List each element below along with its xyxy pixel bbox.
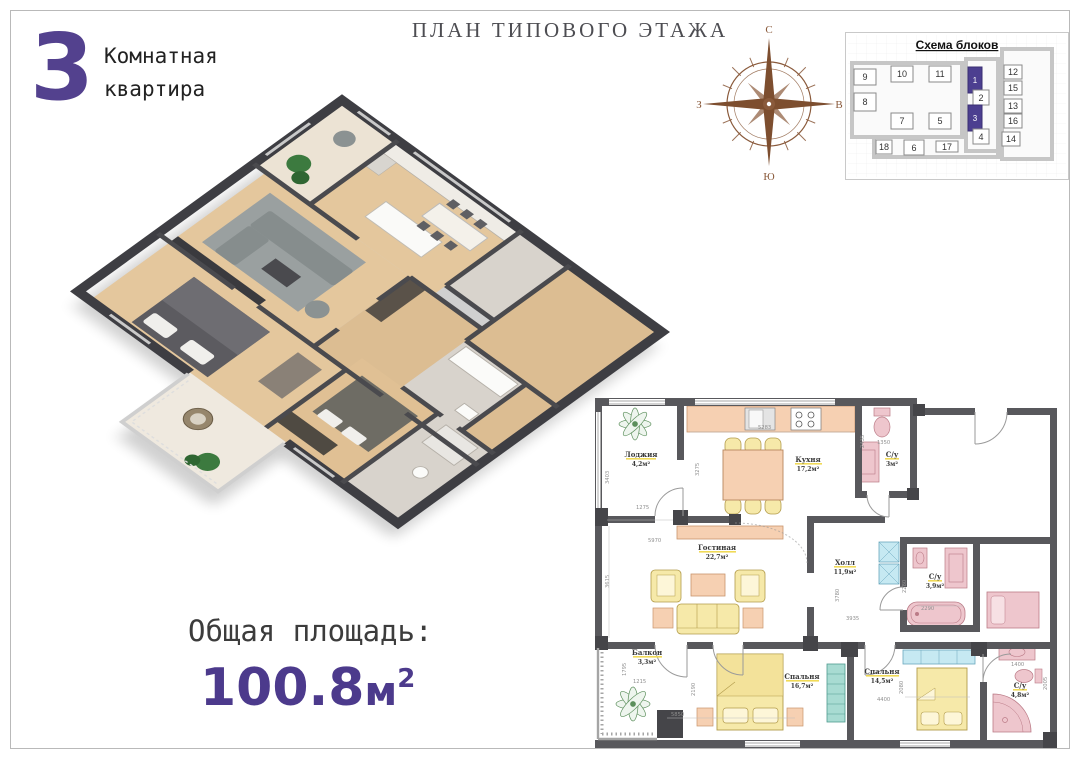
floor-plan-page: ПЛАН ТИПОВОГО ЭТАЖА 3 Комнатная квартира [0, 0, 1080, 763]
svg-text:Лоджия: Лоджия [625, 450, 658, 459]
svg-text:13: 13 [1008, 101, 1018, 111]
svg-text:17: 17 [942, 142, 952, 152]
svg-text:3780: 3780 [835, 589, 841, 602]
plan-3d [12, 92, 672, 584]
block-13: 13 [1004, 99, 1022, 113]
room-label-bedroom2: Спальня14,5м² [864, 667, 899, 685]
svg-text:15: 15 [1008, 83, 1018, 93]
toilet-tank [874, 408, 890, 416]
total-area-label: Общая площадь: [188, 614, 432, 648]
block-17: 17 [936, 141, 958, 152]
compass-west-label: З [696, 99, 702, 111]
room-label-wc2: С/у3,9м² [926, 572, 945, 590]
svg-text:С/у: С/у [886, 450, 899, 459]
balcony-plant-2d [616, 687, 650, 721]
block-10: 10 [891, 66, 913, 82]
console-table [677, 526, 783, 539]
svg-text:С/у: С/у [929, 572, 942, 581]
sink-2 [913, 548, 927, 568]
svg-text:3935: 3935 [846, 616, 859, 622]
svg-text:4,8м²: 4,8м² [1011, 692, 1030, 699]
block-12: 12 [1004, 65, 1022, 79]
block-scheme: Схема блоков 9 10 11 1 12 8 2 15 13 7 5 … [845, 32, 1069, 180]
svg-text:2190: 2190 [691, 683, 697, 696]
block-3-highlighted: 3 [968, 105, 982, 131]
toilet-1 [874, 417, 890, 437]
svg-text:2080: 2080 [899, 681, 905, 694]
block-11: 11 [929, 66, 951, 82]
room-label-hall: Холл11,9м² [834, 558, 857, 576]
dining-set [723, 438, 783, 514]
svg-text:6: 6 [911, 143, 916, 153]
svg-text:3,9м²: 3,9м² [926, 583, 945, 590]
block-8: 8 [854, 93, 876, 111]
total-area-unit: м [364, 669, 397, 715]
block-1-highlighted: 1 [968, 67, 982, 93]
svg-text:3615: 3615 [605, 575, 611, 588]
svg-text:14,5м²: 14,5м² [871, 678, 894, 685]
svg-text:5970: 5970 [648, 538, 661, 544]
svg-text:С/у: С/у [1014, 681, 1027, 690]
svg-text:Спальня: Спальня [784, 672, 819, 681]
svg-text:4400: 4400 [877, 697, 890, 703]
plan-2d: Лоджия4,2м² Кухня17,2м² С/у3м² Гостиная2… [595, 392, 1070, 760]
sofa-2d [677, 604, 739, 634]
svg-text:22,7м²: 22,7м² [706, 554, 729, 561]
block-2: 2 [973, 90, 989, 105]
svg-text:2: 2 [978, 93, 983, 103]
room-label-balcony: Балкон3,3м² [632, 648, 662, 666]
wardrobe-1 [827, 664, 845, 722]
nightstand-right [787, 708, 803, 726]
compass-east-label: В [835, 99, 842, 111]
svg-text:Спальня: Спальня [864, 667, 899, 676]
svg-text:1275: 1275 [636, 505, 649, 511]
coffee-table-2d [691, 574, 725, 596]
room-label-kitchen: Кухня17,2м² [795, 455, 822, 473]
svg-text:Кухня: Кухня [795, 455, 820, 464]
compass-rose: С В З Ю [693, 20, 845, 182]
total-area-block: Общая площадь: 100.8м2 [188, 614, 432, 718]
svg-text:Балкон: Балкон [632, 648, 662, 657]
block-scheme-title: Схема блоков [916, 38, 999, 52]
svg-text:3м²: 3м² [886, 461, 898, 468]
block-6: 6 [904, 140, 924, 155]
plan3d-floors [12, 100, 662, 573]
svg-text:7: 7 [899, 116, 904, 126]
svg-text:11: 11 [935, 69, 944, 79]
room-label-wc3: С/у4,8м² [1011, 681, 1030, 699]
block-9: 9 [854, 69, 876, 85]
room-label-living: Гостиная22,7м² [698, 543, 736, 561]
compass-north-label: С [765, 24, 772, 36]
svg-text:1: 1 [973, 76, 978, 85]
block-16: 16 [1004, 114, 1022, 128]
room-label-loggia: Лоджия4,2м² [625, 450, 658, 468]
svg-text:10: 10 [897, 69, 907, 79]
svg-text:3,3м²: 3,3м² [638, 659, 657, 666]
total-area-superscript: 2 [397, 664, 415, 694]
svg-text:2280: 2280 [902, 580, 908, 593]
svg-text:9: 9 [862, 72, 867, 82]
hall-cabinets [879, 542, 899, 584]
svg-text:3275: 3275 [695, 463, 701, 476]
svg-text:2290: 2290 [921, 606, 934, 612]
svg-text:1400: 1400 [1011, 662, 1024, 668]
svg-text:17,2м²: 17,2м² [797, 466, 820, 473]
block-15: 15 [1004, 81, 1022, 95]
nightstand-left [697, 708, 713, 726]
svg-text:1795: 1795 [622, 663, 628, 676]
total-area-number: 100.8 [200, 658, 364, 718]
svg-text:1350: 1350 [877, 440, 890, 446]
svg-text:14: 14 [1006, 134, 1016, 144]
svg-text:3: 3 [973, 114, 978, 123]
svg-text:1215: 1215 [633, 679, 646, 685]
block-14: 14 [1002, 132, 1020, 146]
svg-text:18: 18 [879, 142, 889, 152]
kitchen-stove [791, 408, 821, 430]
svg-text:5283: 5283 [758, 425, 771, 431]
room-label-bedroom1: Спальня16,7м² [784, 672, 819, 690]
compass-south-label: Ю [763, 171, 774, 182]
block-7: 7 [891, 113, 913, 129]
block-18: 18 [876, 140, 892, 154]
svg-text:8: 8 [862, 97, 867, 107]
svg-text:2005: 2005 [1043, 677, 1049, 690]
svg-text:Гостиная: Гостиная [698, 543, 736, 552]
svg-text:4: 4 [978, 132, 983, 142]
svg-text:16,7м²: 16,7м² [791, 683, 814, 690]
svg-text:4,2м²: 4,2м² [632, 461, 651, 468]
apartment-type-line1: Комнатная [104, 40, 218, 73]
block-4: 4 [973, 129, 989, 144]
block-5: 5 [929, 113, 951, 129]
loggia-plant-2d [619, 408, 651, 440]
room-label-wc1: С/у3м² [885, 450, 899, 468]
svg-text:12: 12 [1008, 67, 1018, 77]
svg-text:2435: 2435 [860, 435, 866, 448]
total-area-value: 100.8м2 [200, 658, 432, 718]
svg-text:5: 5 [937, 116, 942, 126]
svg-text:16: 16 [1008, 116, 1018, 126]
svg-text:Холл: Холл [835, 558, 855, 567]
corner-shower [993, 694, 1031, 732]
svg-text:11,9м²: 11,9м² [834, 569, 857, 576]
svg-text:5850: 5850 [671, 712, 684, 718]
svg-text:3403: 3403 [605, 471, 611, 484]
